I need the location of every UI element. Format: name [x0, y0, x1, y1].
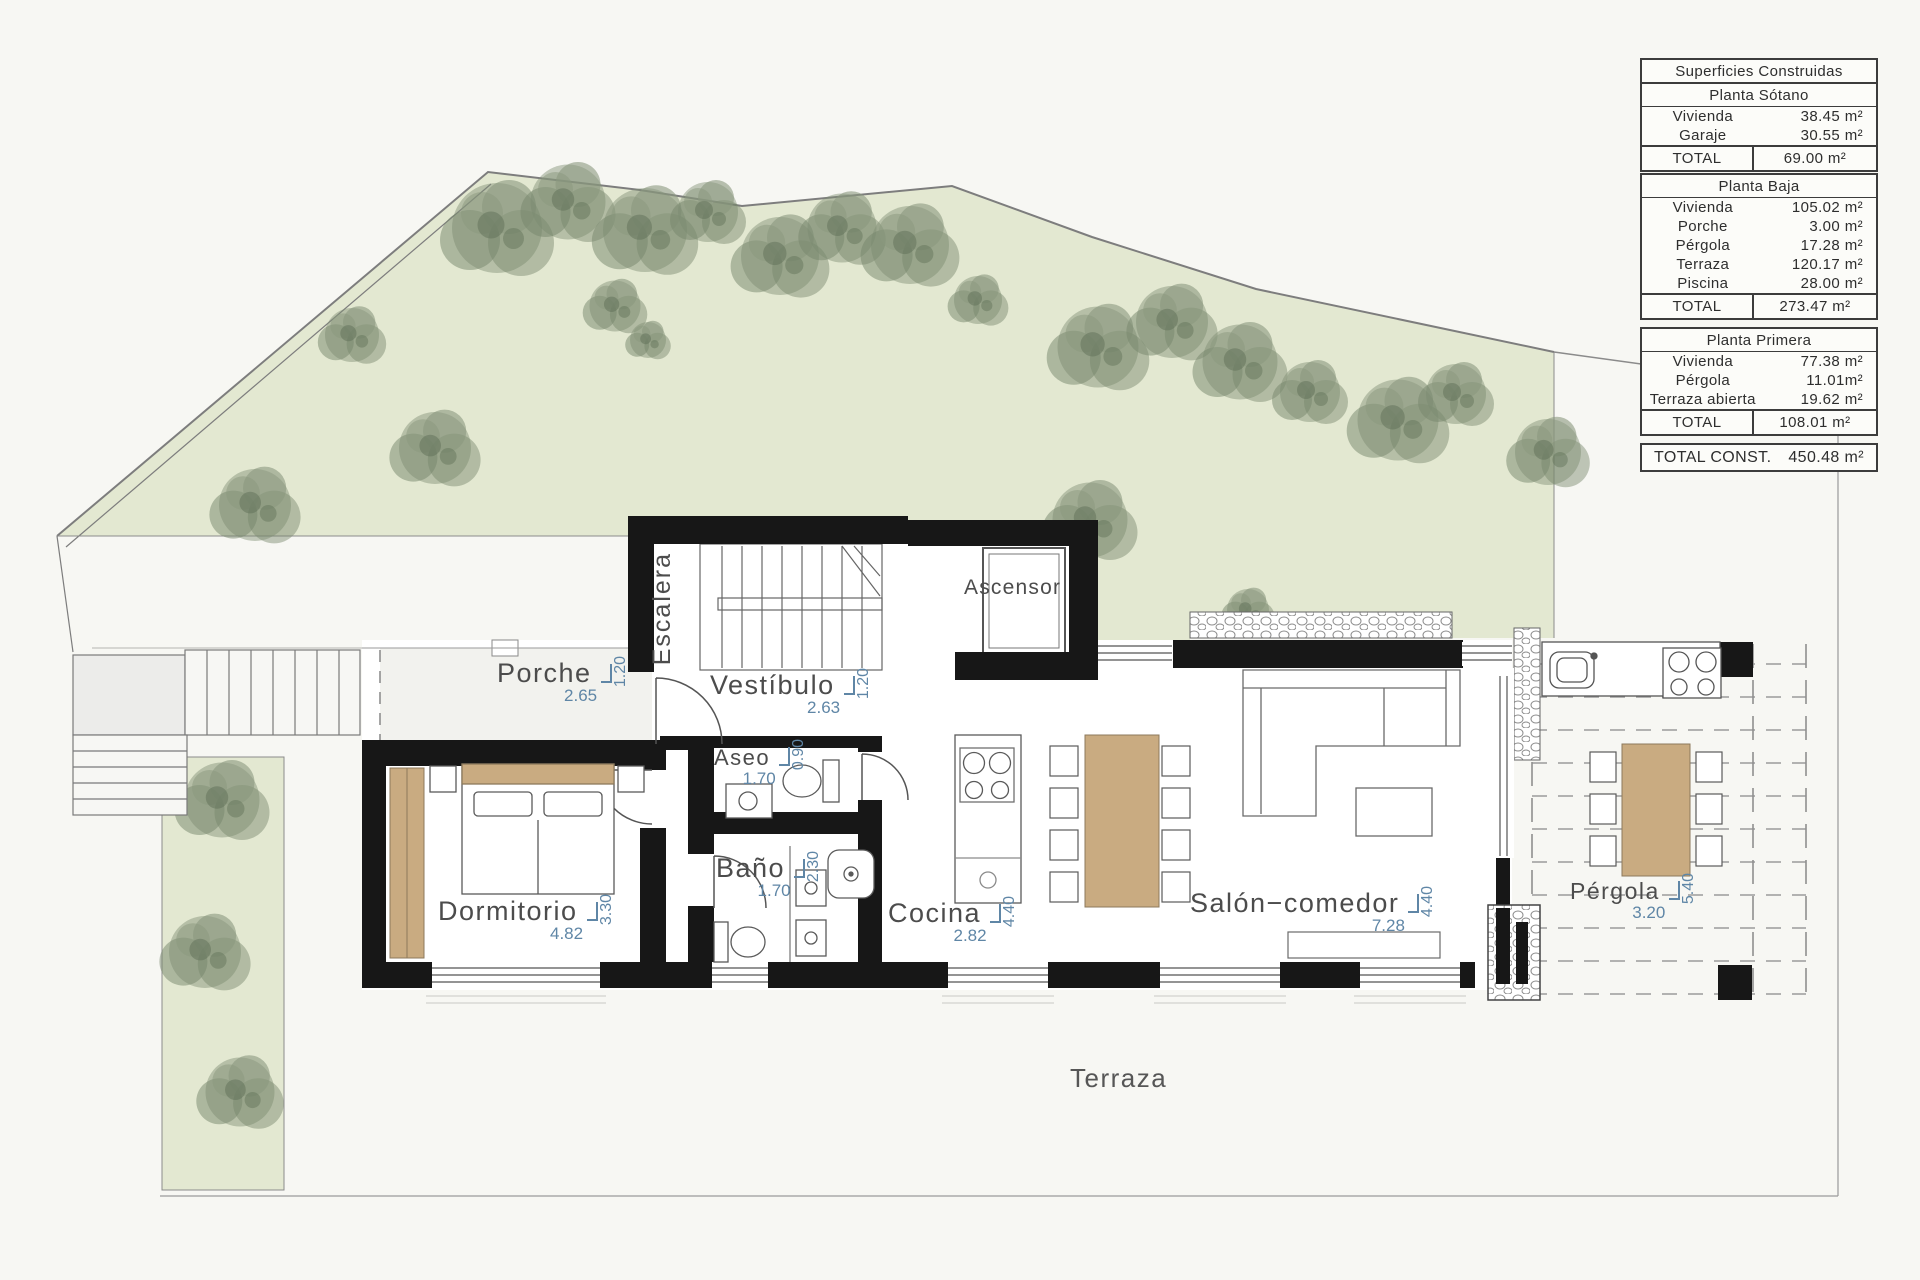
row-value: 30.55 m² — [1764, 126, 1876, 145]
row-label: Vivienda — [1642, 107, 1764, 126]
room-name: Cocina — [888, 898, 981, 928]
dimension-depth: 1.20 — [856, 668, 872, 699]
interior-stairs — [700, 544, 882, 670]
row-label: Vivienda — [1642, 352, 1764, 371]
surface-table-sotano: Superficies Construidas Planta Sótano Vi… — [1640, 58, 1878, 172]
table-row: Piscina28.00 m² — [1642, 274, 1876, 293]
table-row: Porche3.00 m² — [1642, 217, 1876, 236]
row-value: 11.01m² — [1764, 371, 1876, 390]
dimension-width: 1.70 — [717, 770, 801, 787]
total-label: TOTAL — [1642, 147, 1754, 170]
dimension-width: 3.20 — [1607, 904, 1691, 921]
table-floor: Planta Sótano — [1642, 84, 1876, 107]
dimension-corner-icon — [1408, 894, 1419, 913]
dimension-depth: 4.40 — [1002, 896, 1018, 927]
room-name: Dormitorio — [438, 896, 578, 926]
dimension-width: 1.70 — [732, 882, 816, 899]
bed — [430, 764, 644, 894]
pergola-table — [1590, 744, 1722, 876]
room-name: Ascensor — [964, 576, 1061, 599]
row-label: Pérgola — [1642, 236, 1764, 255]
room-label-porche: Porche1.202.65 — [497, 660, 617, 687]
table-floor: Planta Baja — [1642, 175, 1876, 198]
row-value: 3.00 m² — [1764, 217, 1876, 236]
room-name: Aseo — [714, 745, 770, 770]
dimension-width: 2.82 — [928, 927, 1012, 944]
table-row: Pérgola11.01m² — [1642, 371, 1876, 390]
room-name: Pérgola — [1570, 878, 1660, 904]
grand-total-value: 450.48 m² — [1788, 449, 1864, 467]
room-label-aseo: Aseo0.901.70 — [714, 744, 795, 769]
row-value: 17.28 m² — [1764, 236, 1876, 255]
surface-table-planta-baja: Planta Baja Vivienda105.02 m² Porche3.00… — [1640, 173, 1878, 320]
dimension-depth: 1.20 — [613, 656, 629, 687]
tree-icon — [670, 180, 746, 244]
dimension-width: 7.28 — [1346, 917, 1430, 934]
grand-total-label: TOTAL CONST. — [1654, 449, 1771, 467]
room-label-escalera: Escalera — [650, 552, 675, 665]
row-label: Garaje — [1642, 126, 1764, 145]
total-value: 108.01 m² — [1754, 411, 1876, 434]
table-row: Vivienda105.02 m² — [1642, 198, 1876, 217]
room-label-bano: Baño2.301.70 — [716, 855, 810, 882]
row-label: Piscina — [1642, 274, 1764, 293]
room-name: Porche — [497, 658, 592, 688]
dimension-depth: 3.30 — [599, 894, 615, 925]
room-label-ascensor: Ascensor — [964, 577, 1061, 598]
dimension-corner-icon — [844, 676, 855, 695]
dimension-depth: 5.40 — [1681, 873, 1697, 904]
row-value: 120.17 m² — [1764, 255, 1876, 274]
room-label-vestibulo: Vestíbulo1.202.63 — [710, 672, 860, 699]
room-name: Terraza — [1070, 1063, 1167, 1093]
room-label-terraza: Terraza — [1070, 1063, 1167, 1094]
table-row: Vivienda77.38 m² — [1642, 352, 1876, 371]
row-value: 19.62 m² — [1764, 390, 1876, 409]
row-label: Porche — [1642, 217, 1764, 236]
row-value: 28.00 m² — [1764, 274, 1876, 293]
table-row: Vivienda38.45 m² — [1642, 107, 1876, 126]
kitchen-island — [955, 735, 1021, 903]
table-title: Superficies Construidas — [1642, 60, 1876, 84]
row-label: Pérgola — [1642, 371, 1764, 390]
row-value: 105.02 m² — [1764, 198, 1876, 217]
room-name: Vestíbulo — [710, 670, 835, 700]
row-value: 77.38 m² — [1764, 352, 1876, 371]
table-total-row: TOTAL108.01 m² — [1642, 409, 1876, 434]
dimension-depth: 2.30 — [806, 851, 822, 882]
dimension-corner-icon — [1669, 881, 1680, 900]
room-name: Escalera — [648, 552, 676, 665]
table-floor: Planta Primera — [1642, 329, 1876, 352]
grand-total-box: TOTAL CONST. 450.48 m² — [1640, 443, 1878, 472]
room-label-cocina: Cocina4.402.82 — [888, 900, 1006, 927]
dimension-width: 2.63 — [782, 699, 866, 716]
table-row: Pérgola17.28 m² — [1642, 236, 1876, 255]
row-label: Terraza — [1642, 255, 1764, 274]
total-label: TOTAL — [1642, 295, 1754, 318]
room-label-dormitorio: Dormitorio3.304.82 — [438, 898, 603, 925]
table-row: Garaje30.55 m² — [1642, 126, 1876, 145]
elevator-shaft — [983, 548, 1065, 654]
dimension-corner-icon — [779, 747, 790, 766]
row-label: Vivienda — [1642, 198, 1764, 217]
total-value: 69.00 m² — [1754, 147, 1876, 170]
table-total-row: TOTAL69.00 m² — [1642, 145, 1876, 170]
table-row: Terraza abierta19.62 m² — [1642, 390, 1876, 409]
row-label: Terraza abierta — [1642, 390, 1764, 409]
row-value: 38.45 m² — [1764, 107, 1876, 126]
dimension-width: 4.82 — [525, 925, 609, 942]
table-total-row: TOTAL273.47 m² — [1642, 293, 1876, 318]
dimension-corner-icon — [587, 902, 598, 921]
dimension-depth: 0.90 — [791, 739, 807, 770]
dimension-depth: 4.40 — [1420, 886, 1436, 917]
room-label-salon: Salón−comedor4.407.28 — [1190, 890, 1424, 917]
room-name: Salón−comedor — [1190, 888, 1399, 918]
floor-plan-page: Porche1.202.65 Vestíbulo1.202.63 Aseo0.9… — [0, 0, 1920, 1280]
tv-bench — [1288, 932, 1440, 958]
total-label: TOTAL — [1642, 411, 1754, 434]
surface-table-planta-primera: Planta Primera Vivienda77.38 m² Pérgola1… — [1640, 327, 1878, 436]
room-name: Baño — [716, 853, 785, 883]
total-value: 273.47 m² — [1754, 295, 1876, 318]
outdoor-kitchen — [1542, 642, 1721, 698]
coffee-table — [1356, 788, 1432, 836]
room-label-pergola: Pérgola5.403.20 — [1570, 878, 1685, 903]
dimension-corner-icon — [601, 664, 612, 683]
dimension-width: 2.65 — [539, 687, 623, 704]
table-row: Terraza120.17 m² — [1642, 255, 1876, 274]
dimension-corner-icon — [794, 859, 805, 878]
dimension-corner-icon — [990, 904, 1001, 923]
floor-plan-canvas — [0, 0, 1920, 1280]
